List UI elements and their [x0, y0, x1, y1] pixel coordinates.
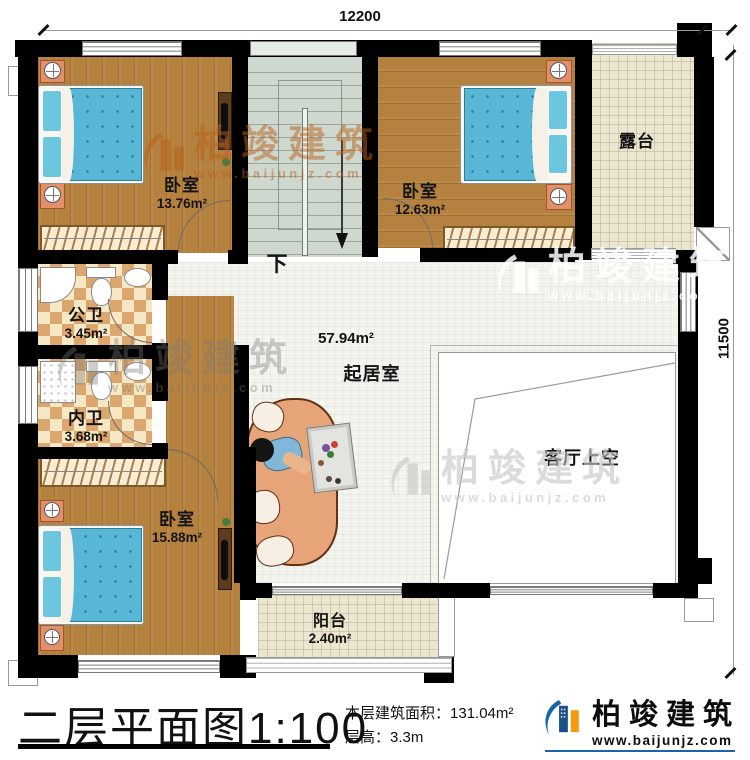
plant-icon [222, 518, 230, 526]
wardrobe [40, 457, 166, 487]
flower-icon [318, 460, 324, 466]
brand-logo: 柏竣建筑 www.baijunjz.com [540, 690, 740, 748]
floor-plan: 12200 11500 下 [0, 0, 750, 760]
table-item [335, 478, 341, 484]
wall [362, 57, 378, 257]
pillow [42, 530, 62, 572]
floor-area-label: 本层建筑面积： [345, 705, 450, 722]
stair-handrail [302, 108, 308, 256]
dimension-top-label: 12200 [320, 8, 400, 25]
room-name: 内卫 [48, 409, 124, 429]
window [439, 41, 541, 56]
corner-column [686, 558, 712, 584]
stairs-down-label: 下 [260, 252, 294, 277]
living-room-name-label: 起居室 [322, 364, 422, 386]
lamp-icon [550, 62, 567, 79]
brand-underline [545, 750, 735, 752]
brand-logo-icon [540, 690, 584, 748]
tv-icon [221, 103, 228, 139]
pillow [42, 576, 62, 618]
bed-sheet [532, 88, 548, 181]
wall [38, 447, 168, 459]
bed-mattress [62, 528, 142, 622]
balcony-door-window [272, 586, 402, 595]
brand-website: www.baijunjz.com [592, 733, 740, 748]
wall [228, 250, 248, 264]
room-area: 3.45m² [48, 326, 124, 342]
toilet-icon [91, 372, 112, 400]
shower-icon [40, 361, 76, 403]
window [82, 41, 182, 56]
title-underline [18, 744, 330, 749]
room-name: 卧室 [137, 176, 227, 196]
wall [402, 583, 490, 598]
tv-icon [221, 540, 228, 580]
wall [653, 583, 698, 598]
room-name: 卧室 [132, 510, 222, 530]
stairs-down-arrow-icon [341, 140, 343, 235]
window [250, 41, 357, 56]
floor-height-value: 3.3m [390, 729, 423, 746]
wall [240, 447, 256, 600]
pillow [42, 90, 62, 132]
bed-mattress [64, 88, 142, 181]
room-label-terrace: 露台 [587, 132, 687, 152]
living-room-area-label: 57.94m² [296, 330, 396, 348]
terrace-railing [591, 248, 676, 259]
room-name: 阳台 [280, 612, 380, 631]
room-label-balcony: 阳台 2.40m² [280, 612, 380, 647]
column-base-outline [684, 598, 714, 622]
wall [152, 343, 168, 401]
floor-height-label: 层高： [345, 729, 390, 746]
floor-height-line: 层高：3.3m [345, 726, 423, 747]
window [18, 268, 38, 332]
room-area: 2.40m² [280, 631, 380, 647]
wall [38, 345, 152, 359]
dimension-tick [724, 49, 736, 61]
wall [420, 248, 575, 262]
room-label-bedroom-top-left: 卧室 13.76m² [137, 176, 227, 213]
flower-icon [327, 451, 334, 458]
lamp-icon [44, 629, 60, 645]
room-name: 公卫 [48, 306, 124, 326]
pillow [548, 90, 568, 130]
room-area: 13.76m² [137, 196, 227, 212]
pillow [548, 134, 568, 174]
plant-icon [222, 158, 230, 166]
window [680, 272, 696, 332]
room-label-bedroom-bottom-left: 卧室 15.88m² [132, 510, 222, 547]
lamp-icon [550, 188, 567, 205]
dimension-tick [724, 667, 736, 679]
brand-company: 柏竣建筑 [592, 691, 740, 733]
room-area: 3.68m² [48, 429, 124, 445]
terrace-side-door [696, 227, 730, 261]
toilet-tank-icon [86, 267, 116, 278]
table-item [326, 476, 332, 482]
lamp-icon [44, 502, 60, 518]
wall [18, 655, 78, 678]
room-label-living-void: 客厅上空 [522, 448, 642, 470]
corridor-floor [166, 296, 234, 457]
wardrobe-rod [44, 238, 161, 239]
coffee-table [306, 423, 358, 494]
window [78, 660, 220, 673]
room-area: 15.88m² [132, 530, 222, 546]
room-label-public-bathroom: 公卫 3.45m² [48, 306, 124, 343]
dimension-line-right [733, 45, 734, 675]
wall [152, 252, 168, 300]
room-name: 露台 [587, 132, 687, 152]
wall [694, 57, 714, 227]
window [18, 366, 38, 424]
toilet-tank-icon [86, 361, 116, 372]
wall [18, 40, 38, 678]
room-name: 卧室 [375, 182, 465, 202]
dimension-right-label: 11500 [716, 309, 733, 369]
pillow [42, 136, 62, 178]
stairs-down-arrowhead-icon [336, 233, 348, 249]
room-label-private-bathroom: 内卫 3.68m² [48, 409, 124, 446]
room-label-bedroom-top-right: 卧室 12.63m² [375, 182, 465, 219]
floor-area-value: 131.04m² [450, 705, 513, 722]
wardrobe-rod [447, 239, 571, 240]
corner-column [677, 23, 712, 57]
window [490, 586, 653, 595]
dimension-line-top [42, 30, 733, 31]
terrace-railing [592, 44, 677, 55]
balcony-side-railing [438, 595, 455, 657]
lamp-icon [44, 62, 61, 79]
lamp-icon [44, 186, 61, 203]
room-area: 12.63m² [375, 202, 465, 218]
balcony-railing [246, 657, 452, 673]
wardrobe-rod [44, 471, 162, 472]
floor-area-line: 本层建筑面积：131.04m² [345, 702, 513, 723]
stair-landing-outline [278, 80, 342, 230]
sink-icon [124, 362, 151, 381]
sink-icon [124, 268, 151, 287]
flower-icon [331, 441, 338, 448]
wall [232, 57, 248, 257]
